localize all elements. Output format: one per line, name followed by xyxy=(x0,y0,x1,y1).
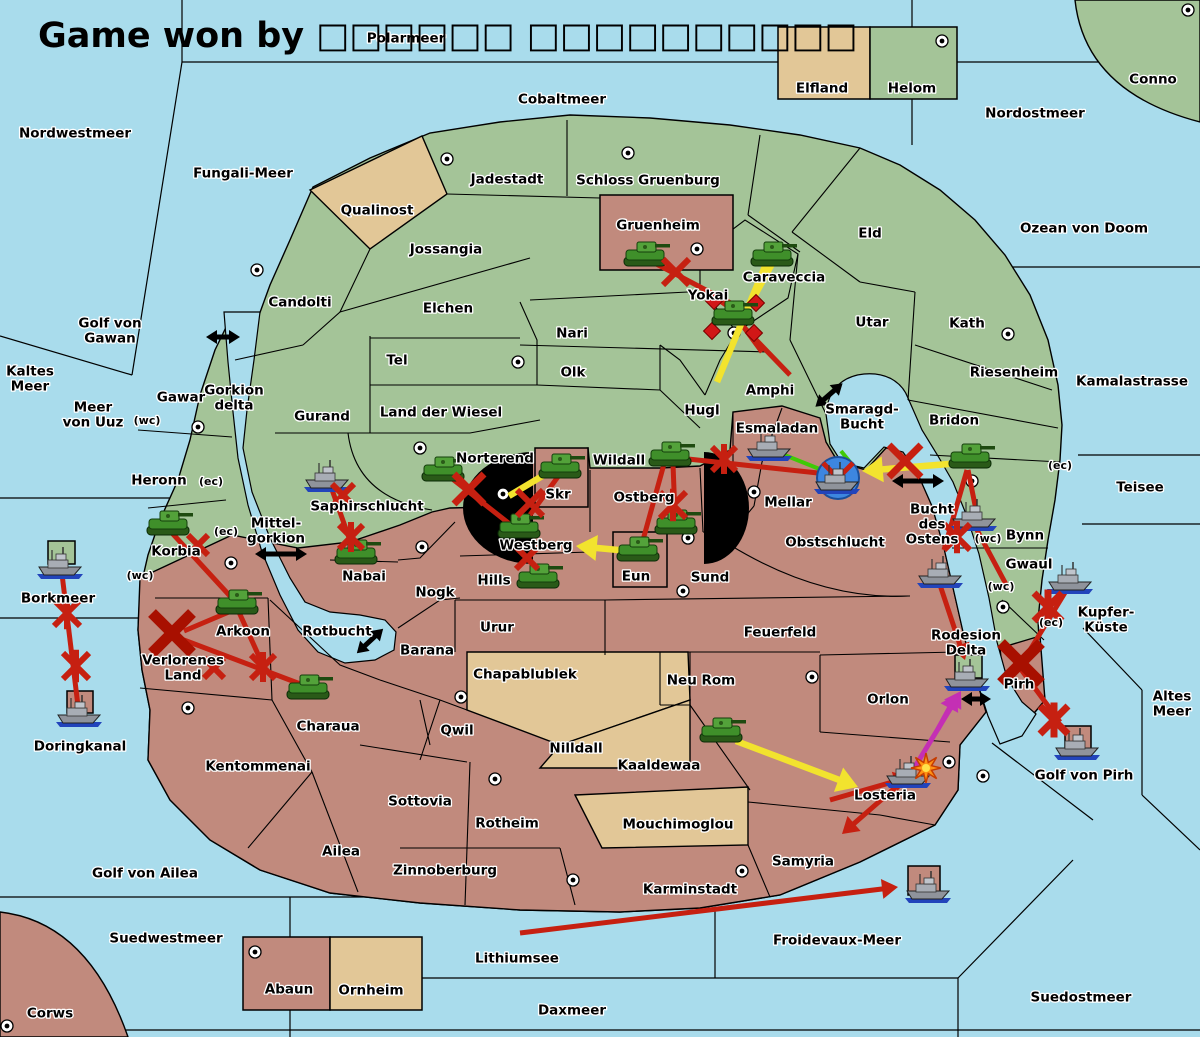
map-label: Hills xyxy=(477,573,510,589)
supply-center-icon xyxy=(936,35,948,47)
supply-center-icon xyxy=(416,541,428,553)
map-label: Kentommenai xyxy=(205,759,310,775)
supply-center-icon xyxy=(1182,4,1194,16)
map-label: Qualinost xyxy=(341,203,414,219)
map-label: Kamalastrasse xyxy=(1076,374,1188,390)
map-label: Mittel-gorkion xyxy=(247,516,305,547)
map-label: Kath xyxy=(949,316,985,332)
supply-center-icon xyxy=(997,601,1009,613)
supply-center-icon xyxy=(225,557,237,569)
map-label: Kupfer-Küste xyxy=(1078,605,1135,636)
map-label: Eld xyxy=(858,226,882,242)
map-label: Nordwestmeer xyxy=(19,126,131,142)
map-label: Elfland xyxy=(796,81,848,97)
map-label: (wc) xyxy=(975,532,1002,545)
map-label: Helom xyxy=(888,81,936,97)
map-label: Mellar xyxy=(764,495,812,511)
map-label: Olk xyxy=(560,365,586,381)
map-label: Bynn xyxy=(1006,528,1044,544)
map-label: Norterend xyxy=(456,451,534,467)
map-label: Doringkanal xyxy=(34,739,126,755)
map-label: Zinnoberburg xyxy=(393,863,497,879)
map-label: Chapablublek xyxy=(473,667,578,683)
supply-center-icon xyxy=(567,874,579,886)
map-label: Caraveccia xyxy=(743,270,825,286)
supply-center-icon xyxy=(512,356,524,368)
supply-center-icon xyxy=(497,488,509,500)
map-label: Elchen xyxy=(423,301,473,317)
map-label: Neu Rom xyxy=(667,673,736,689)
map-label: Golf von Ailea xyxy=(92,866,198,882)
supply-center-icon xyxy=(414,442,426,454)
map-label: Riesenheim xyxy=(970,365,1058,381)
map-label: Froidevaux-Meer xyxy=(773,933,901,949)
map-label: Arkoon xyxy=(216,624,270,640)
region-box-ornheim[interactable] xyxy=(330,937,422,1010)
map-label: (wc) xyxy=(134,414,161,427)
map-label: Teisee xyxy=(1116,480,1164,496)
map-label: Saphirschlucht xyxy=(310,499,424,515)
map-label: Yokai xyxy=(687,288,729,304)
map-label: Abaun xyxy=(265,982,313,998)
map-label: Land der Wiesel xyxy=(380,405,502,421)
map-label: Nabai xyxy=(342,569,386,585)
supply-center-icon xyxy=(192,421,204,433)
map-label: Ozean von Doom xyxy=(1020,221,1148,237)
supply-center-icon xyxy=(736,865,748,877)
map-label: (ec) xyxy=(199,475,223,488)
map-label: Nilldall xyxy=(549,741,602,757)
map-label: Schloss Gruenburg xyxy=(576,173,720,189)
map-label: Ailea xyxy=(322,844,360,860)
map-label: Cobaltmeer xyxy=(518,92,606,108)
map-label: (ec) xyxy=(1039,616,1063,629)
map-label: Candolti xyxy=(268,295,331,311)
map-label: Hugl xyxy=(684,403,719,419)
map-title: Game won by □□□□□□ □□□□□□□□□□ xyxy=(38,16,858,56)
map-label: Borkmeer xyxy=(21,591,96,607)
map-label: (wc) xyxy=(127,569,154,582)
supply-center-icon xyxy=(489,773,501,785)
map-label: Sottovia xyxy=(388,794,452,810)
map-label: Conno xyxy=(1129,72,1177,88)
map-label: Gwaul xyxy=(1006,557,1053,573)
map-label: Golf von Pirh xyxy=(1035,768,1134,784)
map-label: Jadestadt xyxy=(470,172,544,188)
supply-center-icon xyxy=(251,264,263,276)
map-label: Fungali-Meer xyxy=(193,166,293,182)
supply-center-icon xyxy=(806,671,818,683)
map-label: Jossangia xyxy=(409,242,483,258)
map-label: Korbia xyxy=(151,544,201,560)
supply-center-icon xyxy=(441,153,453,165)
map-label: Amphi xyxy=(746,383,794,399)
map-label: Kaaldewaa xyxy=(618,758,701,774)
map-label: Utar xyxy=(855,315,889,331)
map-label: Heronn xyxy=(131,473,187,489)
map-label: Wildall xyxy=(593,453,645,469)
map-label: Karminstadt xyxy=(643,882,738,898)
map-label: Suedwestmeer xyxy=(109,931,223,947)
map-label: AltesMeer xyxy=(1153,689,1192,720)
supply-center-icon xyxy=(748,486,760,498)
map-label: Obstschlucht xyxy=(785,535,885,551)
map-label: Eun xyxy=(622,569,650,585)
map-label: Rotheim xyxy=(475,816,539,832)
map-label: Losteria xyxy=(854,788,916,804)
map-label: Daxmeer xyxy=(538,1003,606,1019)
map-label: Qwil xyxy=(440,723,473,739)
map-label: Urur xyxy=(480,620,514,636)
map-label: Charaua xyxy=(296,719,359,735)
supply-center-icon xyxy=(977,770,989,782)
map-label: Corws xyxy=(27,1006,73,1022)
supply-center-icon xyxy=(677,585,689,597)
map-label: Bridon xyxy=(929,413,979,429)
map-label: Gurand xyxy=(294,409,350,425)
map-label: Tel xyxy=(386,353,407,369)
map-label: Rotbucht xyxy=(302,624,372,640)
map-label: Ornheim xyxy=(338,983,403,999)
map-label: Nordostmeer xyxy=(985,106,1085,122)
supply-center-icon xyxy=(1002,328,1014,340)
map-label: Barana xyxy=(400,643,454,659)
map-label: Nogk xyxy=(415,585,455,601)
map-label: Orlon xyxy=(867,692,909,708)
map-label: (ec) xyxy=(1048,459,1072,472)
map-label: Pirh xyxy=(1004,677,1035,693)
explosion-burst-icon xyxy=(911,753,941,783)
game-map-screenshot: PolarmeerNordwestmeerCobaltmeerNordostme… xyxy=(0,0,1200,1037)
supply-center-icon xyxy=(1,1020,13,1032)
map-label: Golf vonGawan xyxy=(78,316,141,347)
map-label: Feuerfeld xyxy=(744,625,817,641)
supply-center-icon xyxy=(622,147,634,159)
supply-center-icon xyxy=(455,691,467,703)
map-label: Gawar xyxy=(157,390,206,406)
map-label: Esmaladan xyxy=(736,421,819,437)
diplomacy-map: PolarmeerNordwestmeerCobaltmeerNordostme… xyxy=(0,0,1200,1037)
supply-center-icon xyxy=(943,756,955,768)
map-label: Sund xyxy=(691,570,730,586)
map-label: Gruenheim xyxy=(616,218,700,234)
supply-center-icon xyxy=(691,243,703,255)
map-label: Lithiumsee xyxy=(475,951,559,967)
map-label: Skr xyxy=(545,487,571,503)
map-label: Ostberg xyxy=(613,490,674,506)
map-label: KaltesMeer xyxy=(6,364,54,395)
map-label: Westberg xyxy=(499,538,572,554)
map-label: Suedostmeer xyxy=(1031,990,1132,1006)
map-label: Samyria xyxy=(772,854,834,870)
map-label: (wc) xyxy=(988,580,1015,593)
map-label: Mouchimoglou xyxy=(622,817,733,833)
supply-center-icon xyxy=(249,946,261,958)
supply-center-icon xyxy=(182,702,194,714)
map-label: Nari xyxy=(556,326,588,342)
map-label: (ec) xyxy=(214,525,238,538)
